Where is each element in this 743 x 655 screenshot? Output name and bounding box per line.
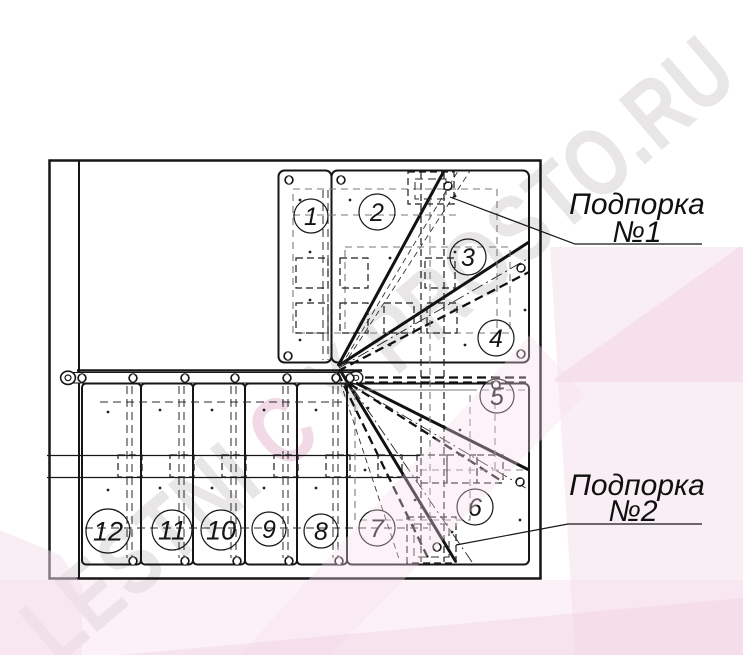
rail-endcap-left xyxy=(61,371,76,384)
step-number: 12 xyxy=(93,516,123,546)
step-number: 10 xyxy=(206,515,236,545)
step-badge-10: 10 xyxy=(201,510,241,550)
step-number: 4 xyxy=(489,325,503,353)
support1-label-line2: №1 xyxy=(612,216,661,249)
step-number: 1 xyxy=(304,203,318,231)
support2-label-line2: №2 xyxy=(608,495,657,528)
step-number: 9 xyxy=(262,516,276,544)
step-number: 2 xyxy=(369,199,384,227)
staircase-plan-screenshot: LESTNI C Y PROSTO.RU xyxy=(0,0,743,655)
step-badge-9: 9 xyxy=(252,512,286,546)
step-number: 8 xyxy=(314,518,328,546)
landing-rail xyxy=(61,371,363,385)
step-badge-2: 2 xyxy=(359,194,395,230)
step-number: 11 xyxy=(158,515,186,545)
step-badge-4: 4 xyxy=(478,320,514,356)
step-badge-11: 11 xyxy=(152,510,192,550)
stair-plan-drawing: LESTNI C Y PROSTO.RU xyxy=(0,0,743,655)
step-number: 3 xyxy=(461,244,475,272)
